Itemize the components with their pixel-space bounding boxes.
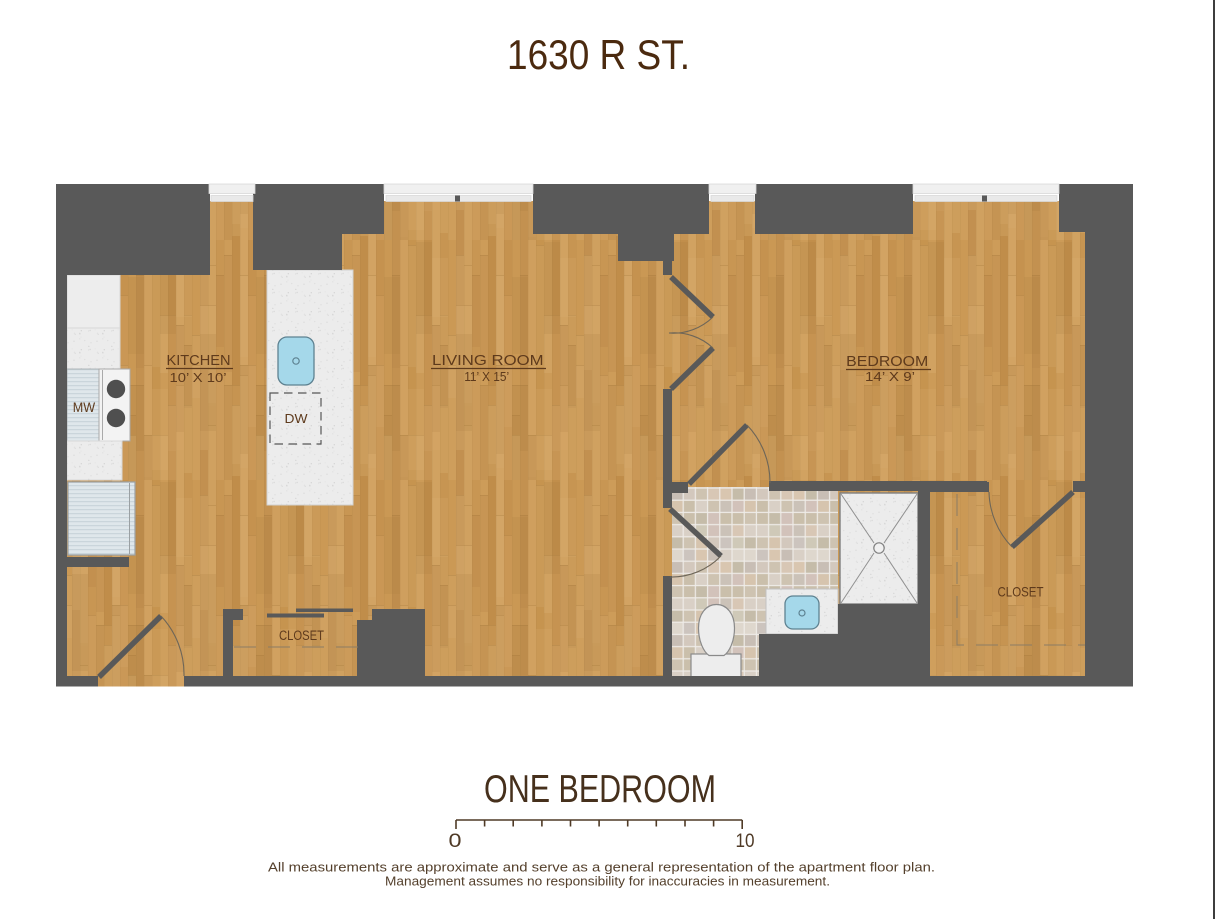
svg-text:0: 0 <box>449 831 462 852</box>
svg-text:14’ X 9’: 14’ X 9’ <box>865 370 915 384</box>
svg-text:LIVING ROOM: LIVING ROOM <box>432 352 544 369</box>
svg-text:10: 10 <box>736 831 755 852</box>
svg-text:KITCHEN: KITCHEN <box>167 352 231 369</box>
svg-text:MW: MW <box>73 399 96 415</box>
svg-text:BEDROOM: BEDROOM <box>846 353 928 370</box>
svg-text:10’ X 10’: 10’ X 10’ <box>170 370 227 385</box>
svg-text:All measurements are approxima: All measurements are approximate and ser… <box>268 860 935 875</box>
svg-text:CLOSET: CLOSET <box>998 584 1044 600</box>
svg-text:Management assumes no responsi: Management assumes no responsibility for… <box>385 874 830 889</box>
svg-text:CLOSET: CLOSET <box>279 628 324 643</box>
svg-text:DW: DW <box>285 411 309 426</box>
svg-text:11’ X 15’: 11’ X 15’ <box>464 370 509 384</box>
svg-text:1630 R ST.: 1630 R ST. <box>507 31 690 78</box>
svg-text:ONE BEDROOM: ONE BEDROOM <box>484 768 716 811</box>
